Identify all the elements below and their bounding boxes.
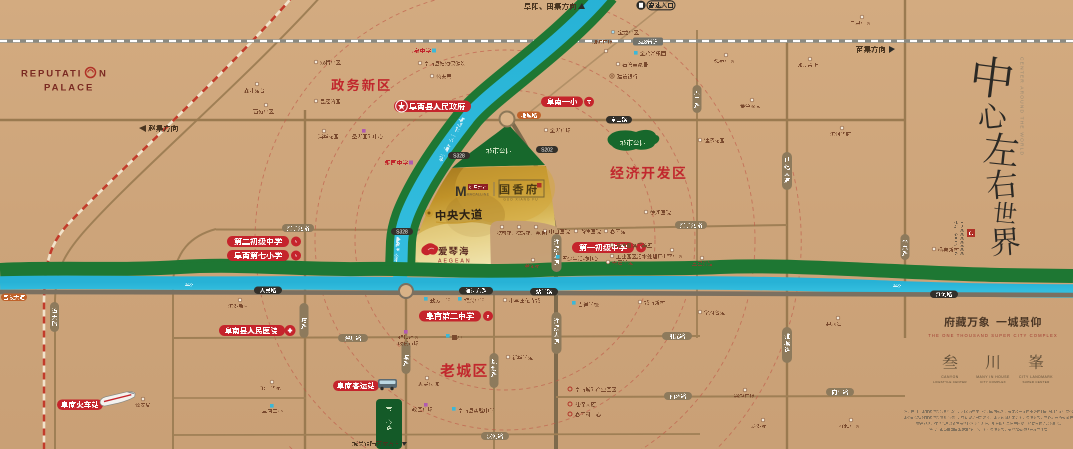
svg-text:CITY LANDMARK: CITY LANDMARK [1019,375,1053,379]
svg-text:CITY COMPLEX: CITY COMPLEX [980,380,1006,384]
svg-text:AEGEAN: AEGEAN [438,259,472,265]
svg-text:M: M [455,183,467,199]
svg-text:REPUTATI: REPUTATI [21,69,82,80]
svg-text:PALACE: PALACE [44,83,94,94]
svg-text:MACALLINE: MACALLINE [467,193,490,197]
svg-text:N: N [99,69,106,80]
svg-text:MANY IN HOUSE: MANY IN HOUSE [976,375,1010,379]
svg-text:S202: S202 [541,148,553,154]
svg-text:LIFESTYLE CENTER: LIFESTYLE CENTER [933,380,967,384]
svg-text:THE ONE THOUSAND SUPER CITY CO: THE ONE THOUSAND SUPER CITY COMPLEX [928,333,1058,338]
svg-text:S328: S328 [453,154,465,160]
svg-text:SUPER CENTER: SUPER CENTER [1022,380,1050,384]
svg-text:CANYON: CANYON [941,375,959,379]
svg-text:S328: S328 [396,230,408,236]
svg-text:GUO XIANG FU: GUO XIANG FU [503,198,538,202]
